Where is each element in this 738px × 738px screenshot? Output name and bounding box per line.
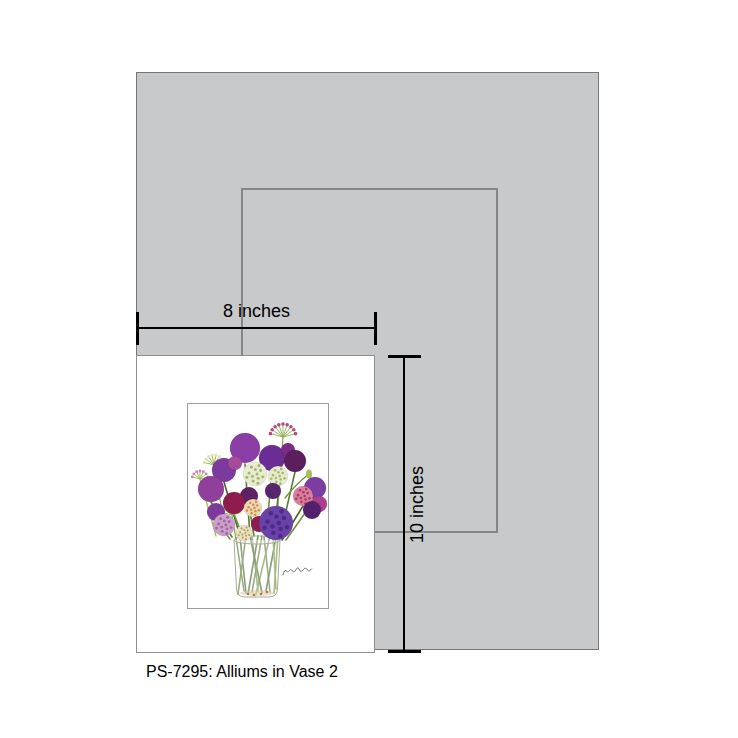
width-dimension-label: 8 inches: [136, 301, 377, 321]
print-size-comparison-diagram: 8 inches 10 inches PS-7295: Alliums in V…: [0, 0, 738, 738]
print-mat: [136, 355, 375, 653]
product-caption: PS-7295: Alliums in Vase 2: [146, 663, 338, 681]
height-dimension-label: 10 inches: [404, 356, 430, 653]
artwork-alliums-in-vase: [188, 404, 328, 608]
width-dimension-line: [136, 327, 377, 329]
artwork-frame: [187, 403, 329, 609]
